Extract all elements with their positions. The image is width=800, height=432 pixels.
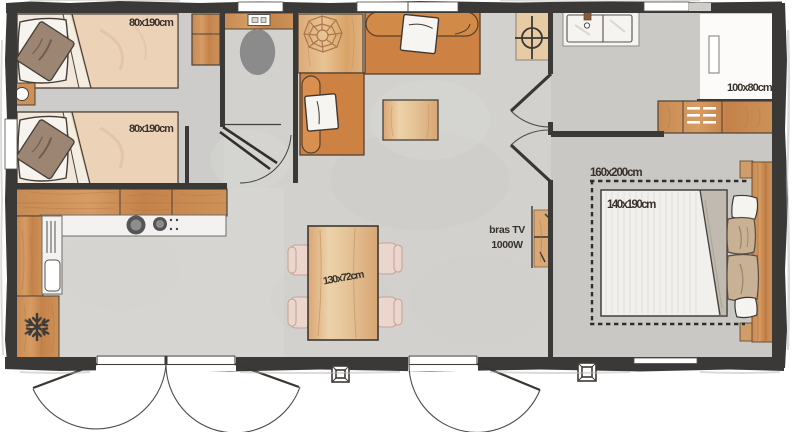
svg-text:80x190cm: 80x190cm	[129, 17, 174, 29]
svg-text:1000W: 1000W	[491, 239, 523, 251]
svg-text:80x190cm: 80x190cm	[129, 123, 174, 135]
svg-text:140x190cm: 140x190cm	[607, 199, 656, 211]
svg-text:100x80cm: 100x80cm	[727, 82, 773, 94]
svg-text:bras TV: bras TV	[489, 224, 525, 236]
svg-text:160x200cm: 160x200cm	[590, 167, 642, 179]
